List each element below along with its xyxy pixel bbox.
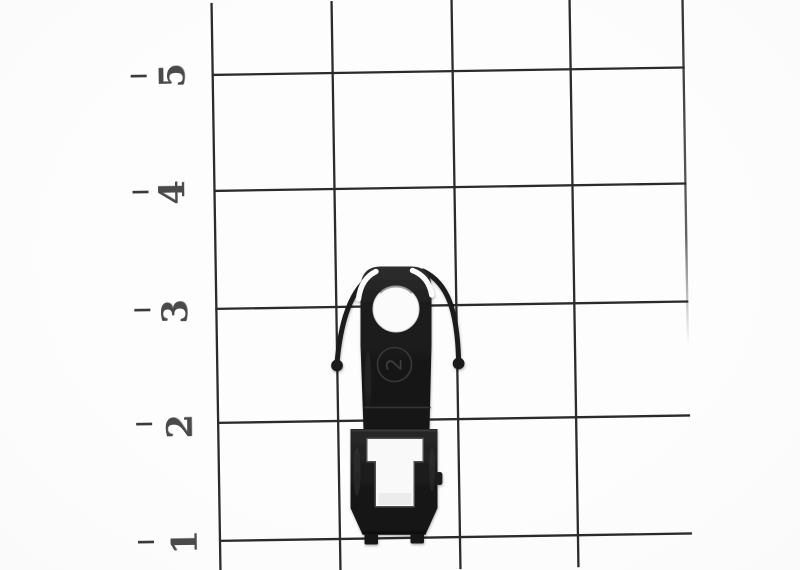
body-sheen [365,352,372,408]
foot-tab-right [411,534,425,544]
product-photo: 5 4 3 2 1 [0,0,800,570]
coupler-clip-part: 2 [318,246,482,562]
ruler-ticks [131,76,154,542]
t-slot-inner-shadow [379,493,412,505]
embossed-marking: 2 [383,358,407,371]
ruler-number-4: 4 [152,180,193,205]
collar-sheen-left [354,448,361,496]
spring-ball-left [331,360,343,372]
ruler-number-3: 3 [155,299,196,324]
ruler-number-5: 5 [152,63,193,88]
ruler-number-2: 2 [160,414,201,439]
ruler-number-1: 1 [164,530,205,555]
foot-tab-left [365,534,379,545]
collar-sheen-right [429,448,435,492]
grid-vertical-line-faded [681,0,689,346]
side-nub [436,472,442,485]
spring-ball-right [453,358,465,370]
